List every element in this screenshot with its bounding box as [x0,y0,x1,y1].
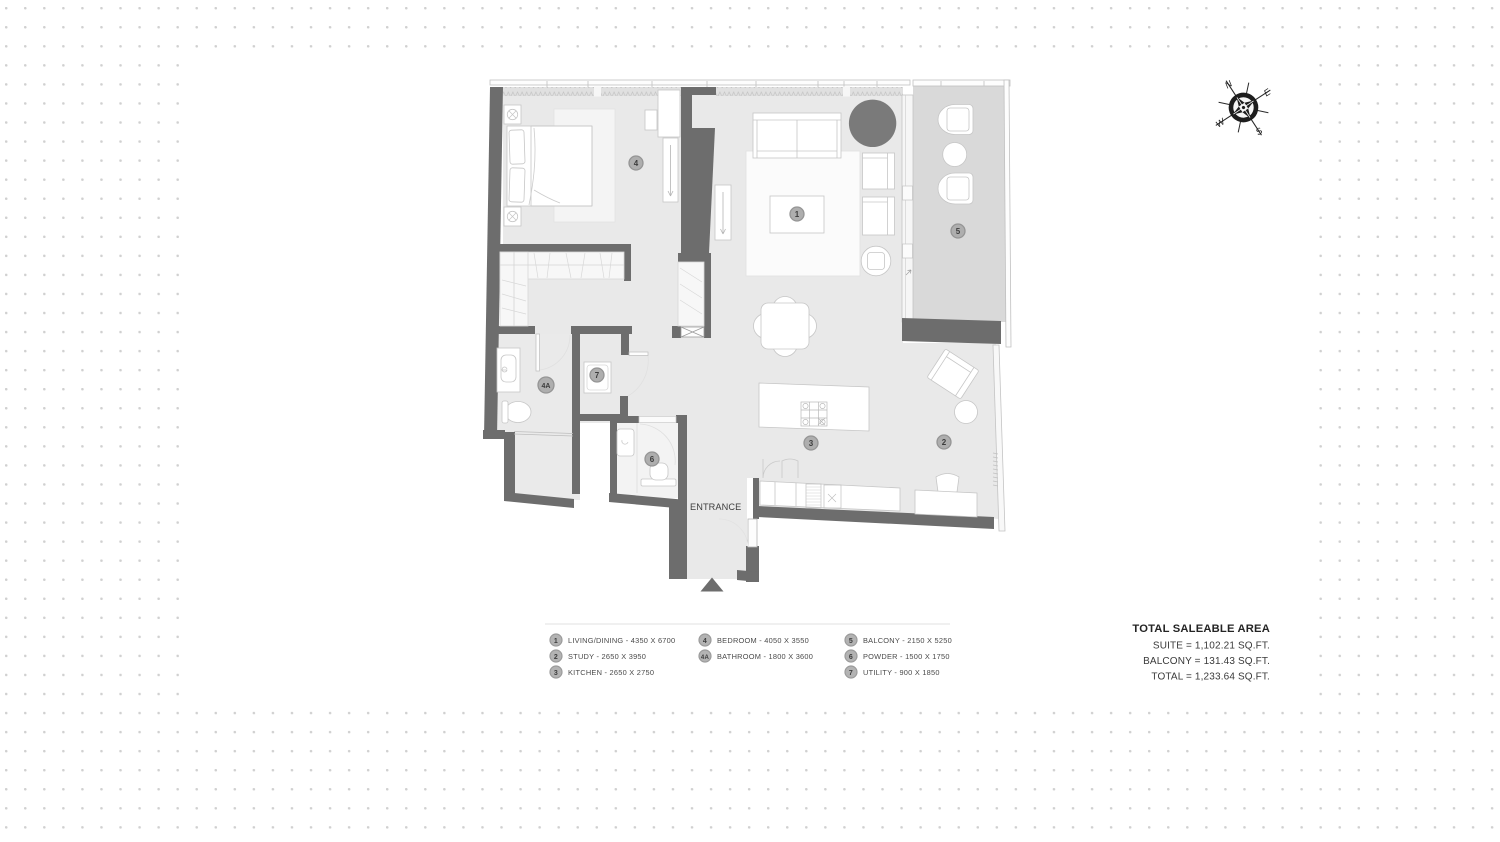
svg-text:6: 6 [849,654,853,661]
svg-text:BEDROOM - 4050 X 3550: BEDROOM - 4050 X 3550 [717,636,809,645]
svg-text:4A: 4A [701,655,710,661]
svg-text:BALCONY = 131.43 SQ.FT.: BALCONY = 131.43 SQ.FT. [1143,656,1270,667]
svg-text:3: 3 [554,670,558,677]
svg-text:7: 7 [849,670,853,677]
svg-text:1: 1 [554,638,558,645]
svg-text:5: 5 [849,638,853,645]
svg-text:6: 6 [650,455,655,464]
svg-text:BALCONY - 2150 X 5250: BALCONY - 2150 X 5250 [863,636,952,645]
svg-text:4: 4 [703,638,707,645]
svg-text:ENTRANCE: ENTRANCE [690,502,741,512]
svg-text:5: 5 [956,227,961,236]
svg-text:TOTAL = 1,233.64 SQ.FT.: TOTAL = 1,233.64 SQ.FT. [1151,672,1270,683]
svg-text:2: 2 [554,654,558,661]
svg-text:4: 4 [634,159,639,168]
svg-text:KITCHEN - 2650 X 2750: KITCHEN - 2650 X 2750 [568,668,654,677]
svg-text:TOTAL SALEABLE AREA: TOTAL SALEABLE AREA [1132,623,1270,635]
svg-text:STUDY - 2650 X 3950: STUDY - 2650 X 3950 [568,652,646,661]
svg-text:POWDER - 1500 X 1750: POWDER - 1500 X 1750 [863,652,950,661]
svg-text:4A: 4A [542,383,551,390]
svg-text:3: 3 [809,439,814,448]
svg-text:7: 7 [595,371,600,380]
svg-text:SUITE = 1,102.21 SQ.FT.: SUITE = 1,102.21 SQ.FT. [1153,641,1270,652]
svg-text:2: 2 [942,438,947,447]
svg-text:BATHROOM - 1800 X 3600: BATHROOM - 1800 X 3600 [717,652,813,661]
svg-text:1: 1 [795,210,800,219]
svg-text:UTILITY - 900 X 1850: UTILITY - 900 X 1850 [863,668,940,677]
svg-text:LIVING/DINING - 4350 X 6700: LIVING/DINING - 4350 X 6700 [568,636,675,645]
